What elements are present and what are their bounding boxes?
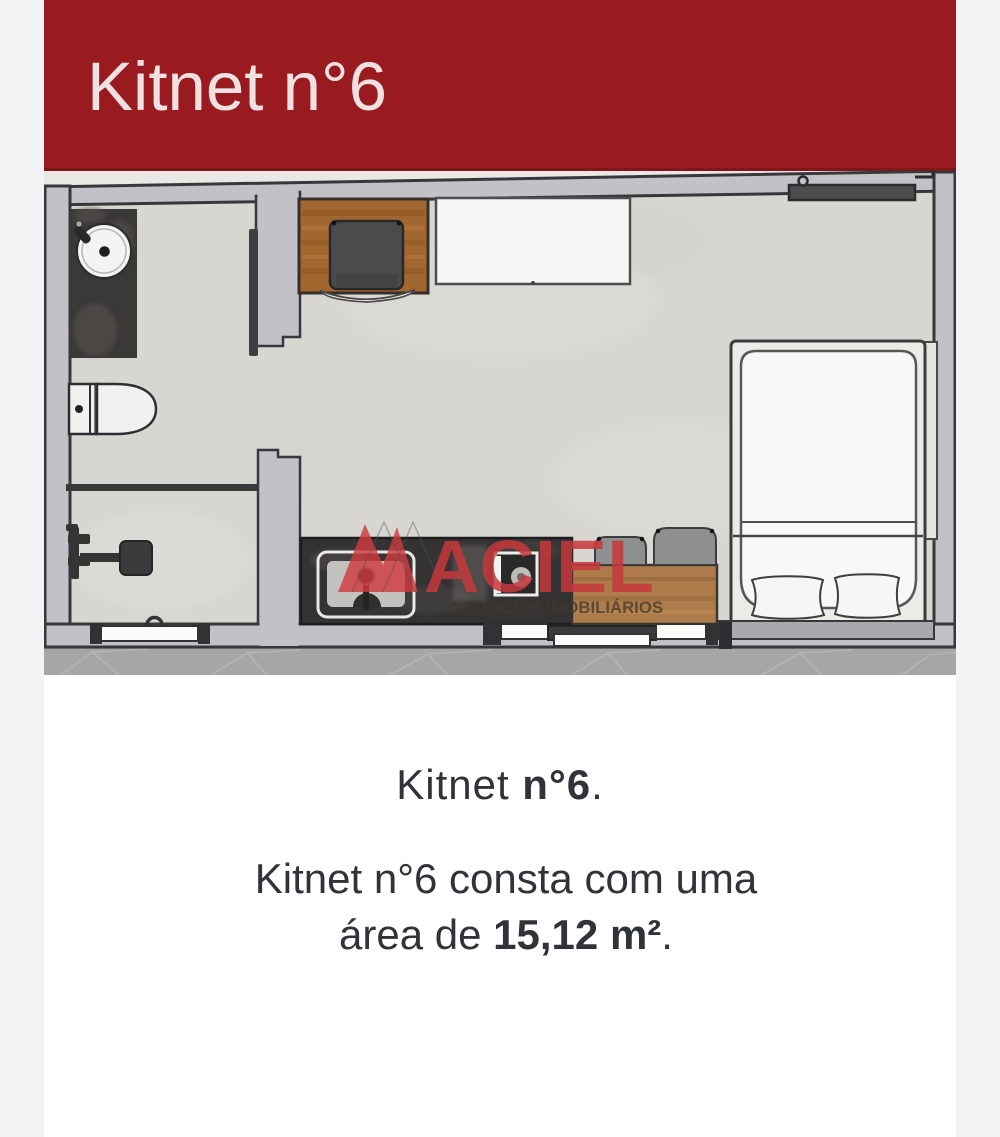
svg-text:NEGÓCIOS IMOBILIÁRIOS: NEGÓCIOS IMOBILIÁRIOS — [452, 598, 663, 617]
svg-text:ACIEL: ACIEL — [424, 525, 654, 608]
